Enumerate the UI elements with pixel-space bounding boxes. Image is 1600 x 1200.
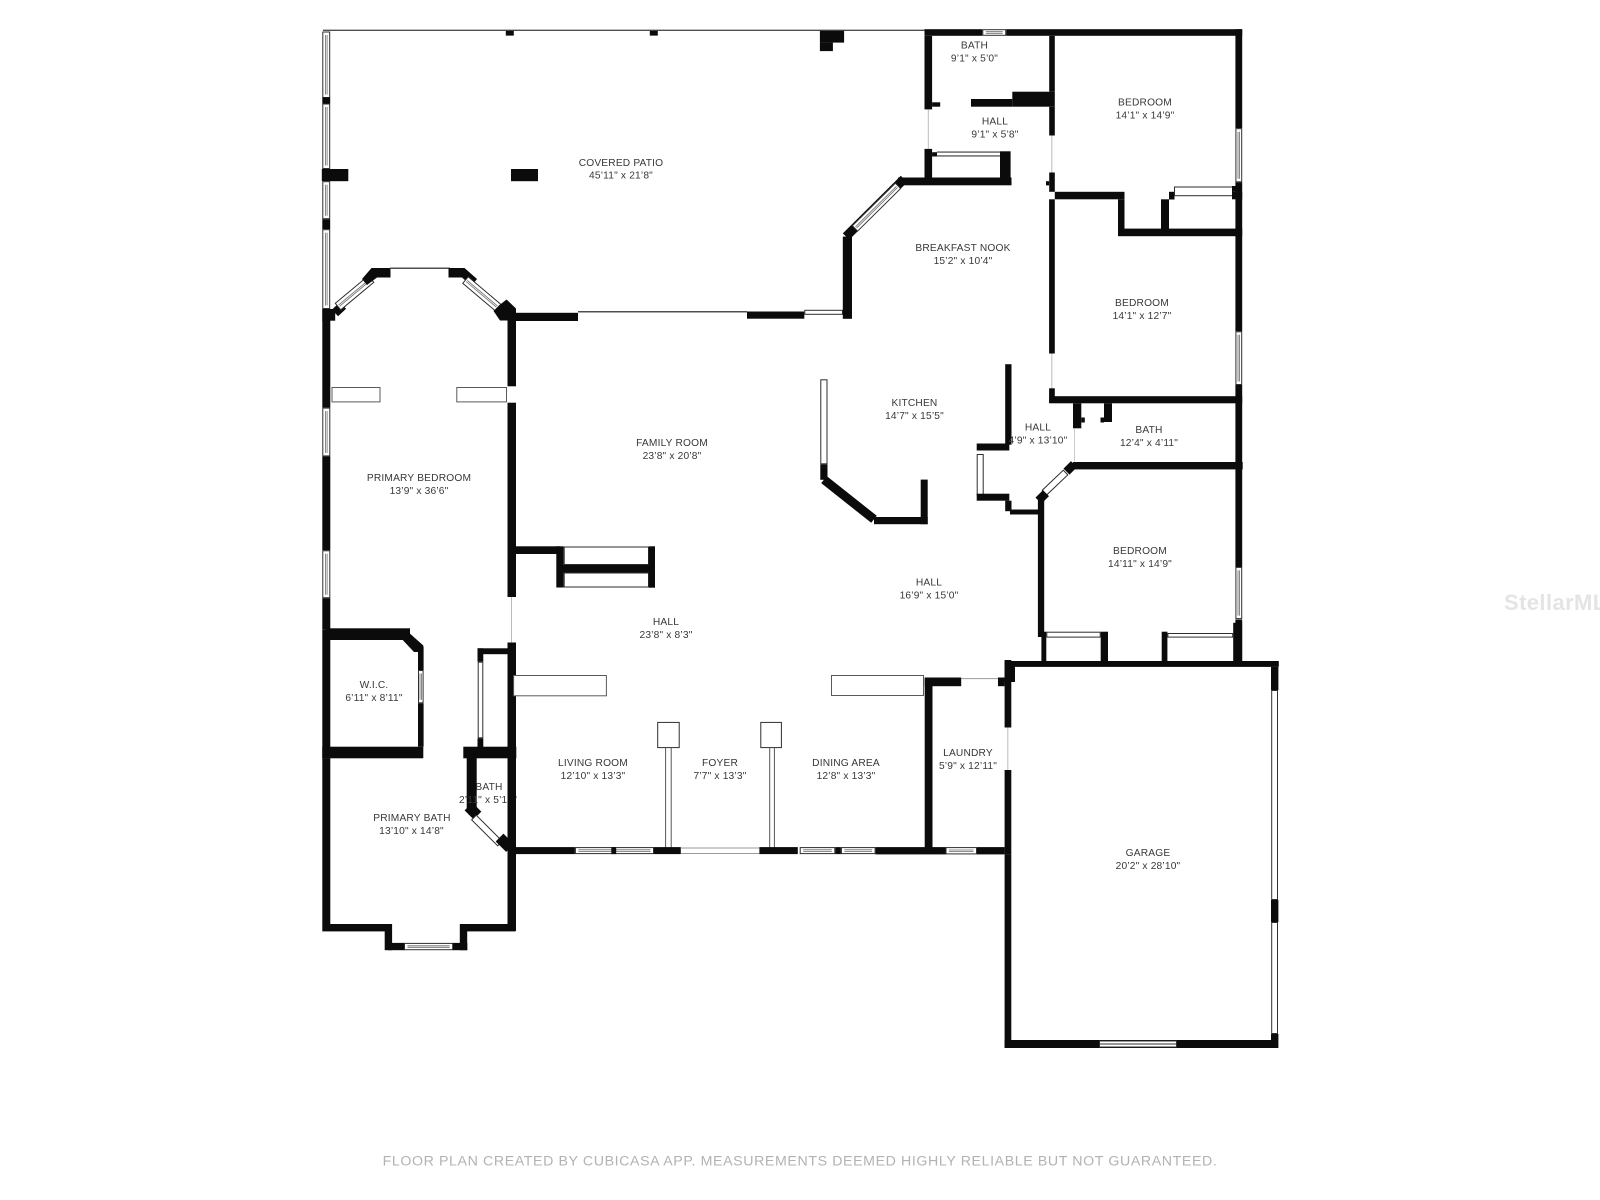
svg-text:LAUNDRY: LAUNDRY <box>943 748 993 759</box>
svg-text:12’4" x 4’11": 12’4" x 4’11" <box>1120 438 1178 449</box>
svg-text:5’9" x 12’11": 5’9" x 12’11" <box>939 761 997 772</box>
svg-text:23’8" x 20’8": 23’8" x 20’8" <box>643 451 702 462</box>
svg-text:FAMILY ROOM: FAMILY ROOM <box>636 438 708 449</box>
svg-text:BREAKFAST NOOK: BREAKFAST NOOK <box>915 243 1010 254</box>
svg-text:14’11" x 14’9": 14’11" x 14’9" <box>1108 559 1172 570</box>
svg-text:StellarMLS: StellarMLS <box>1504 590 1600 615</box>
svg-text:HALL: HALL <box>653 617 679 628</box>
svg-text:HALL: HALL <box>916 577 942 588</box>
svg-text:GARAGE: GARAGE <box>1126 848 1171 859</box>
svg-text:12’8" x 13’3": 12’8" x 13’3" <box>817 771 876 782</box>
svg-text:15’2" x 10’4": 15’2" x 10’4" <box>934 256 993 267</box>
svg-text:16’9" x 15’0": 16’9" x 15’0" <box>900 590 959 601</box>
svg-text:BATH: BATH <box>961 40 988 51</box>
svg-text:6’11" x 8’11": 6’11" x 8’11" <box>345 693 403 704</box>
svg-text:45’11" x 21’8": 45’11" x 21’8" <box>589 171 653 182</box>
svg-text:20’2" x 28’10": 20’2" x 28’10" <box>1116 861 1181 872</box>
svg-text:14’1" x 12’7": 14’1" x 12’7" <box>1113 311 1172 322</box>
svg-text:9’1" x 5’8": 9’1" x 5’8" <box>971 129 1018 140</box>
svg-text:COVERED PATIO: COVERED PATIO <box>579 158 664 169</box>
svg-text:9’1" x 5’0": 9’1" x 5’0" <box>951 53 998 64</box>
svg-text:13’10" x 14’8": 13’10" x 14’8" <box>379 826 444 837</box>
svg-text:FOYER: FOYER <box>702 758 738 769</box>
svg-text:LIVING ROOM: LIVING ROOM <box>558 758 628 769</box>
svg-text:HALL: HALL <box>1025 422 1051 433</box>
svg-text:14’1" x 14’9": 14’1" x 14’9" <box>1116 110 1175 121</box>
svg-text:FLOOR PLAN CREATED BY CUBICASA: FLOOR PLAN CREATED BY CUBICASA APP. MEAS… <box>383 1154 1218 1170</box>
svg-text:BATH: BATH <box>475 782 502 793</box>
svg-text:12’10" x 13’3": 12’10" x 13’3" <box>561 771 626 782</box>
svg-text:BATH: BATH <box>1135 425 1162 436</box>
svg-text:14’7" x 15’5": 14’7" x 15’5" <box>885 411 944 422</box>
svg-text:BEDROOM: BEDROOM <box>1113 546 1167 557</box>
svg-text:7’7" x 13’3": 7’7" x 13’3" <box>693 771 746 782</box>
svg-text:HALL: HALL <box>982 116 1008 127</box>
svg-text:BEDROOM: BEDROOM <box>1118 97 1172 108</box>
svg-text:DINING AREA: DINING AREA <box>812 758 880 769</box>
svg-text:PRIMARY BEDROOM: PRIMARY BEDROOM <box>367 473 471 484</box>
svg-text:4’9" x 13’10": 4’9" x 13’10" <box>1009 435 1068 446</box>
svg-text:KITCHEN: KITCHEN <box>892 398 938 409</box>
svg-text:BEDROOM: BEDROOM <box>1115 298 1169 309</box>
svg-text:W.I.C.: W.I.C. <box>360 680 389 691</box>
svg-text:13’9" x 36’6": 13’9" x 36’6" <box>390 486 449 497</box>
svg-text:PRIMARY BATH: PRIMARY BATH <box>373 813 450 824</box>
svg-text:23’8" x 8’3": 23’8" x 8’3" <box>639 630 692 641</box>
